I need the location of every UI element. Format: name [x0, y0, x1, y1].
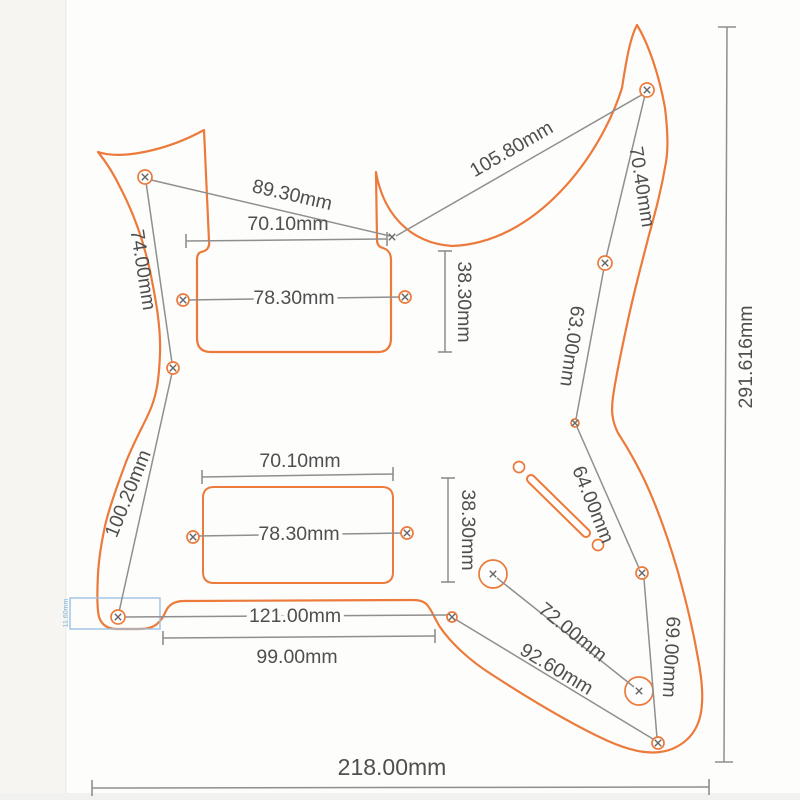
dim-label-78-30-neck: 78.30mm — [253, 287, 334, 309]
dim-label-70-40: 70.40mm — [625, 145, 659, 229]
dim-label-89-30: 89.30mm — [250, 175, 334, 215]
dim-label-121-00: 121.00mm — [249, 605, 341, 627]
dim-label-105-80: 105.80mm — [466, 117, 557, 182]
pickguard-dimension-diagram: 11.60mm — [0, 0, 800, 800]
dim-label-218-00: 218.00mm — [338, 754, 447, 780]
dim-label-291-616: 291.616mm — [735, 306, 757, 409]
neck-heel-label: 11.60mm — [63, 599, 70, 628]
dim-label-70-10-neck: 70.10mm — [247, 213, 328, 235]
diagram-canvas: 11.60mm — [0, 0, 800, 800]
pickguard-outline — [97, 25, 702, 752]
dim-label-78-30-bridge: 78.30mm — [258, 523, 339, 545]
dim-label-38-30-bridge: 38.30mm — [457, 489, 479, 570]
dim-label-38-30-neck: 38.30mm — [453, 261, 475, 342]
left-photo-edge — [0, 0, 66, 800]
bottom-photo-edge — [0, 793, 800, 800]
dim-label-69-00: 69.00mm — [658, 616, 684, 698]
dim-label-100-20: 100.20mm — [101, 447, 156, 541]
switch-screw-hole — [514, 462, 525, 473]
dim-label-99-00: 99.00mm — [256, 646, 337, 668]
dim-label-70-10-bridge: 70.10mm — [259, 450, 340, 472]
